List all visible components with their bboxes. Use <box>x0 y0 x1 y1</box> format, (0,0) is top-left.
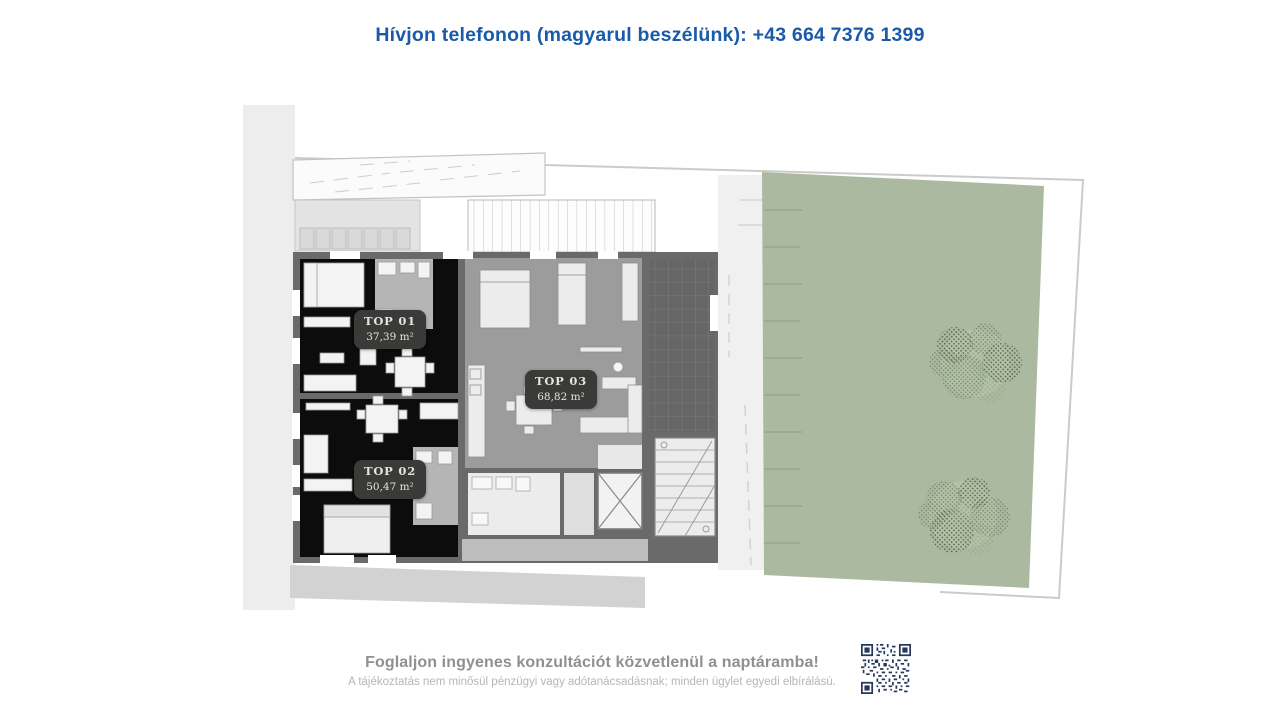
sidewalk <box>290 565 645 608</box>
unit-id: TOP 02 <box>356 464 424 480</box>
elevator <box>598 445 642 529</box>
floorplan-drawing <box>240 95 1085 615</box>
unit-top03-room <box>465 258 642 468</box>
unit-area: 37,39 m² <box>356 330 424 344</box>
unit-label-top02: TOP 02 50,47 m² <box>354 460 426 499</box>
tiled-terrace <box>650 259 715 432</box>
unit-id: TOP 01 <box>356 314 424 330</box>
qr-code[interactable] <box>861 644 911 694</box>
phone-header: Hívjon telefonon (magyarul beszélünk): +… <box>10 24 1280 47</box>
footer-disclaimer: A tájékoztatás nem minősül pénzügyi vagy… <box>250 676 934 688</box>
footer-cta: Foglaljon ingyenes konzultációt közvetle… <box>250 654 934 672</box>
unit-area: 68,82 m² <box>527 390 595 404</box>
upper-court <box>295 200 420 251</box>
neighbor-building-strip <box>243 105 295 610</box>
staircase <box>655 438 715 536</box>
walkway <box>718 175 768 570</box>
unit-area: 50,47 m² <box>356 480 424 494</box>
garden <box>762 172 1044 588</box>
pergola-louvers <box>468 200 655 252</box>
unit-label-top01: TOP 01 37,39 m² <box>354 310 426 349</box>
footer-block: Foglaljon ingyenes konzultációt közvetle… <box>250 654 934 688</box>
roof-band <box>293 153 545 200</box>
unit-id: TOP 03 <box>527 374 595 390</box>
unit-label-top03: TOP 03 68,82 m² <box>525 370 597 409</box>
